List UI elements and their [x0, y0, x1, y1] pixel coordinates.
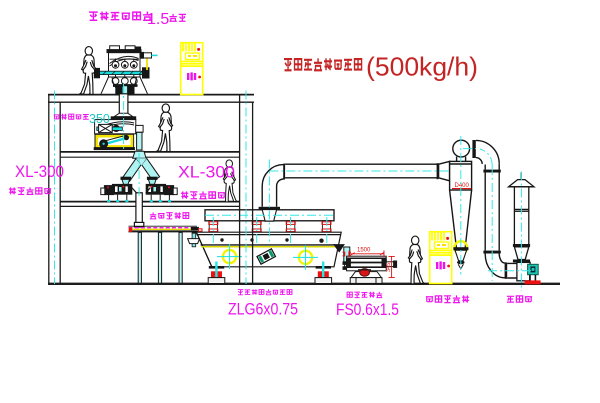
svg-text:1500: 1500 [357, 248, 371, 254]
svg-text:345: 345 [386, 263, 392, 272]
svg-text:D400: D400 [455, 183, 470, 189]
svg-text:ZLG6x0.75: ZLG6x0.75 [228, 301, 298, 319]
svg-text:1.5: 1.5 [147, 11, 169, 28]
svg-text:FS0.6x1.5: FS0.6x1.5 [336, 301, 399, 319]
svg-text:XL-300: XL-300 [178, 163, 235, 182]
svg-text:(500kg/h): (500kg/h) [366, 52, 478, 82]
svg-text:XL-300: XL-300 [15, 163, 64, 181]
svg-text:350: 350 [89, 112, 110, 126]
